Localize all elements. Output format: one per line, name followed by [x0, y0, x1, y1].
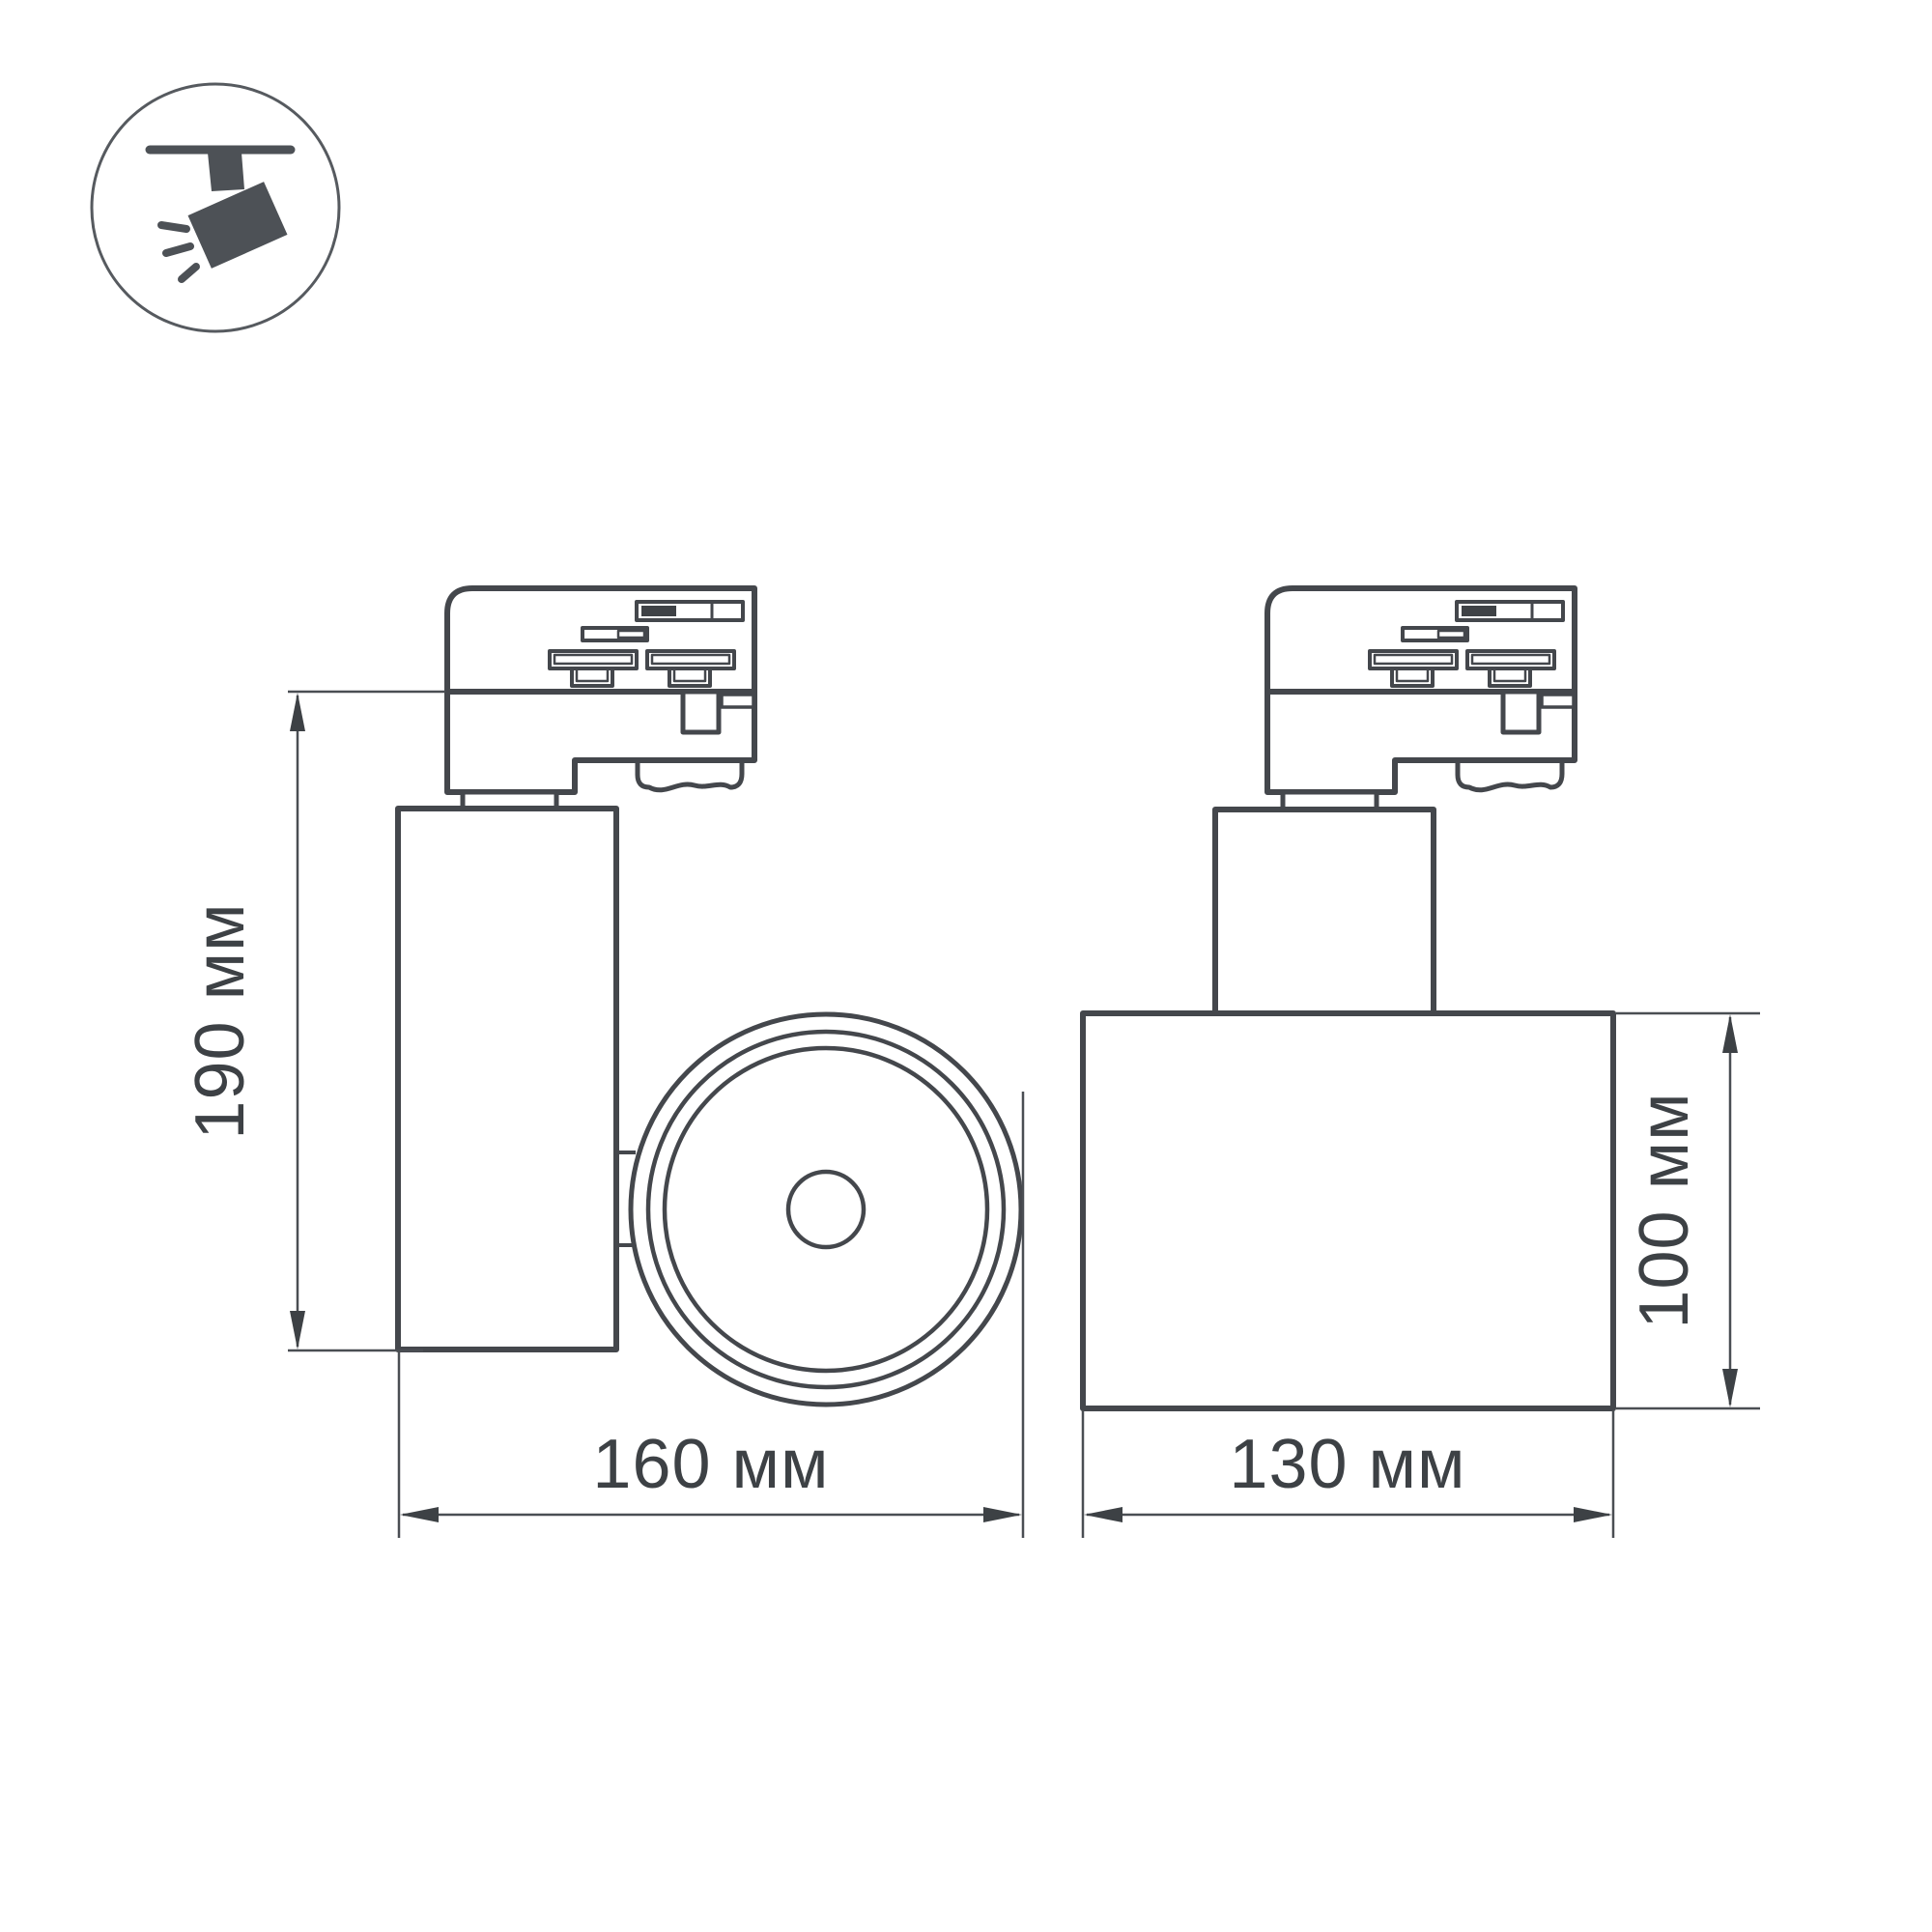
lens-face: [631, 1014, 1021, 1405]
track-adapter: [447, 588, 754, 810]
lamp-stem-side: [1215, 810, 1434, 1013]
arrowhead-down: [290, 1311, 305, 1350]
arrowhead-down: [1722, 1369, 1738, 1407]
lens-center-led: [788, 1172, 864, 1247]
arrowhead-right: [1574, 1507, 1612, 1522]
lamp-body-side: [1083, 1013, 1613, 1408]
arrowhead-left: [1084, 1507, 1122, 1522]
side-height-label: 100 мм: [1626, 1092, 1703, 1328]
arrowhead-up: [290, 693, 305, 731]
lamp-body-front: [398, 809, 616, 1350]
side-width-label: 130 мм: [1229, 1426, 1465, 1503]
track-adapter: [1267, 588, 1575, 810]
front-width-label: 160 мм: [592, 1426, 829, 1503]
technical-drawing-page: 190 мм 160 мм 130 мм 100 мм: [0, 0, 1932, 1932]
spotlight-icon-badge: [92, 84, 339, 331]
arrowhead-left: [400, 1507, 439, 1522]
front-height-label: 190 мм: [182, 902, 259, 1139]
drawing-canvas: 190 мм 160 мм 130 мм 100 мм: [0, 0, 1932, 1932]
arrowhead-right: [983, 1507, 1022, 1522]
side-view-drawing: [1083, 588, 1613, 1408]
arrowhead-up: [1722, 1014, 1738, 1053]
front-view-drawing: [398, 588, 1021, 1405]
